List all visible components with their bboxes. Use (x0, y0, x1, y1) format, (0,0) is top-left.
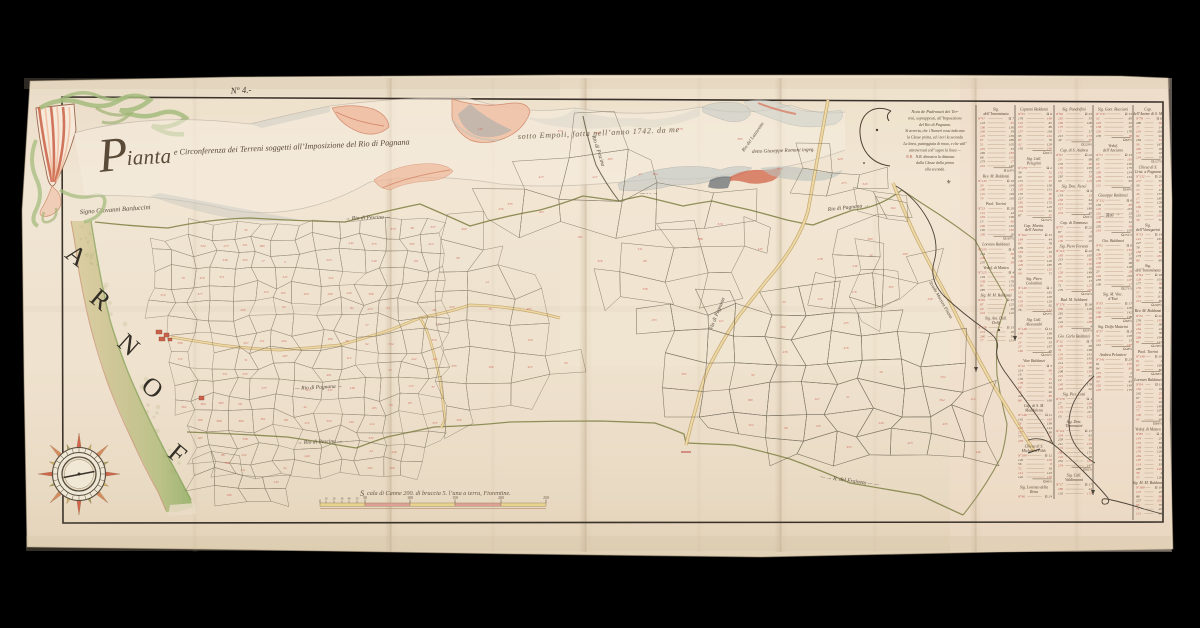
svg-text:N.B. dimostra la distanza: N.B. dimostra la distanza (915, 155, 955, 159)
svg-text:285: 285 (980, 288, 985, 292)
svg-text:323: 323 (243, 258, 248, 262)
svg-text:Nº97: Nº97 (1055, 153, 1063, 157)
svg-text:175: 175 (1127, 388, 1132, 392)
svg-text:476: 476 (844, 346, 849, 350)
svg-text:58: 58 (410, 226, 414, 230)
svg-text:P: P (95, 127, 131, 183)
svg-text:21: 21 (846, 395, 850, 399)
svg-text:Nº155: Nº155 (977, 247, 987, 251)
svg-text:123: 123 (1087, 179, 1092, 183)
svg-text:Chiesa di S.: Chiesa di S. (1025, 444, 1044, 448)
svg-text:179: 179 (677, 127, 682, 131)
svg-text:190: 190 (1058, 239, 1063, 243)
svg-text:Nº148: Nº148 (1017, 327, 1027, 331)
svg-text:Nº46: Nº46 (1017, 494, 1025, 498)
svg-text:449: 449 (392, 450, 397, 454)
svg-text:dalla Classe dalla prima: dalla Classe dalla prima (916, 161, 954, 165)
svg-text:Sig. Dott.: Sig. Dott. (1067, 420, 1082, 424)
svg-text:547: 547 (283, 275, 288, 279)
svg-text:Nº78: Nº78 (1135, 117, 1143, 121)
svg-text:234: 234 (1058, 211, 1063, 215)
svg-text:549: 549 (372, 259, 377, 263)
svg-text:210: 210 (980, 164, 985, 168)
svg-text:Nº152: Nº152 (1095, 198, 1105, 202)
svg-text:319: 319 (717, 222, 722, 226)
svg-text:273: 273 (262, 386, 267, 390)
svg-text:62: 62 (1089, 387, 1093, 391)
svg-text:85: 85 (408, 401, 412, 405)
svg-text:— - - →: — - - → (639, 190, 658, 197)
svg-text:34: 34 (386, 306, 390, 310)
svg-text:142: 142 (1018, 475, 1023, 479)
svg-text:90: 90 (1058, 179, 1062, 183)
svg-text:470: 470 (200, 276, 205, 280)
svg-text:517: 517 (198, 292, 203, 296)
svg-text:Lorenzo Baldanzi: Lorenzo Baldanzi (1133, 378, 1161, 382)
svg-text:Ω232½: Ω232½ (1041, 353, 1052, 357)
svg-text:79: 79 (980, 196, 984, 200)
svg-text:Nº69: Nº69 (977, 298, 985, 302)
svg-text:445: 445 (757, 247, 762, 251)
svg-text:43: 43 (638, 172, 642, 176)
svg-text:446: 446 (976, 450, 981, 454)
svg-text:Lorenzo Baldanzi: Lorenzo Baldanzi (981, 243, 1009, 247)
svg-text:Rev. M. Baldanzi: Rev. M. Baldanzi (982, 174, 1010, 178)
svg-text:Ω55½: Ω55½ (1083, 329, 1092, 333)
svg-text:attraversati coll’ segno la li: attraversati coll’ segno la linea — (909, 148, 961, 152)
svg-text:166: 166 (328, 337, 333, 341)
svg-text:Bad. M. Seldanni: Bad. M. Seldanni (1060, 298, 1087, 302)
svg-text:Sig. Pandolfini: Sig. Pandolfini (1062, 108, 1085, 112)
svg-text:235: 235 (243, 372, 248, 376)
svg-text:77: 77 (980, 339, 984, 343)
svg-text:Ω 20: Ω 20 (1155, 175, 1162, 179)
svg-text:42: 42 (303, 405, 307, 409)
svg-text:Vine Baldanzi: Vine Baldanzi (1023, 359, 1045, 363)
svg-text:Ω 11: Ω 11 (1155, 383, 1162, 387)
svg-text:356: 356 (457, 418, 462, 422)
svg-text:Sig. Gaet. Bucciani: Sig. Gaet. Bucciani (1098, 108, 1128, 112)
svg-text:Ω 22: Ω 22 (1085, 153, 1092, 157)
svg-text:106: 106 (227, 493, 232, 497)
svg-text:388: 388 (697, 237, 702, 241)
svg-text:222: 222 (412, 357, 417, 361)
svg-text:203: 203 (1058, 387, 1063, 391)
svg-text:88: 88 (1136, 258, 1140, 262)
svg-text:Nº104: Nº104 (1017, 233, 1027, 237)
svg-text:Ω127½: Ω127½ (1151, 160, 1162, 164)
svg-text:Ω134½: Ω134½ (1081, 292, 1092, 296)
svg-text:Nº85: Nº85 (1135, 432, 1143, 436)
svg-text:209: 209 (390, 466, 395, 470)
svg-text:52: 52 (283, 466, 287, 470)
svg-text:Gio. Baldanzi: Gio. Baldanzi (1102, 239, 1124, 243)
svg-text:Maddalena: Maddalena (1024, 408, 1043, 412)
svg-text:dell’Ancisa: dell’Ancisa (1025, 228, 1043, 232)
svg-text:Nº 4.-: Nº 4.- (229, 85, 251, 96)
svg-text:265: 265 (607, 157, 612, 161)
svg-text:Nº32: Nº32 (1135, 314, 1143, 318)
svg-text:Ω57½: Ω57½ (1043, 312, 1052, 316)
svg-text:478: 478 (783, 350, 788, 354)
svg-text:Ω271½: Ω271½ (1121, 287, 1132, 291)
svg-text:Ω187½: Ω187½ (1003, 237, 1014, 241)
svg-text:del Rio di Pagnana.: del Rio di Pagnana. (919, 122, 951, 127)
svg-text:Ω 1: Ω 1 (1047, 286, 1053, 290)
svg-text:292: 292 (368, 466, 373, 470)
svg-text:247: 247 (328, 388, 333, 392)
svg-text:Nº197: Nº197 (1055, 189, 1065, 193)
svg-text:210: 210 (980, 311, 985, 315)
svg-text:383: 383 (219, 401, 224, 405)
svg-text:132: 132 (1058, 492, 1063, 496)
svg-text:151: 151 (1009, 339, 1014, 343)
svg-text:173: 173 (1087, 492, 1092, 496)
svg-text:176: 176 (852, 290, 857, 294)
svg-text:82: 82 (350, 306, 354, 310)
svg-text:531: 531 (243, 243, 248, 247)
svg-text:71: 71 (1049, 272, 1053, 276)
svg-text:Ω 1: Ω 1 (1157, 432, 1163, 436)
svg-text:100: 100 (1058, 324, 1063, 328)
svg-text:58: 58 (238, 402, 242, 406)
svg-text:Ω 4: Ω 4 (1009, 247, 1015, 251)
svg-text:396: 396 (369, 292, 374, 296)
svg-text:Nº176: Nº176 (1055, 303, 1065, 307)
svg-text:36: 36 (345, 339, 349, 343)
svg-text:Sig. Piero Forzoni: Sig. Piero Forzoni (1060, 244, 1089, 248)
svg-text:Rev. M. Baldanzi: Rev. M. Baldanzi (1134, 309, 1162, 313)
svg-text:335: 335 (452, 364, 457, 368)
svg-text:Ω91½: Ω91½ (1083, 215, 1092, 219)
svg-text:340: 340 (927, 297, 932, 301)
svg-text:92: 92 (365, 342, 369, 346)
svg-text:390: 390 (867, 237, 872, 241)
svg-text:148: 148 (350, 386, 355, 390)
svg-text:114: 114 (971, 397, 976, 401)
svg-text:95: 95 (564, 361, 568, 365)
svg-text:Sig. Lorenzo della: Sig. Lorenzo della (1020, 485, 1048, 489)
svg-text:ianta: ianta (126, 144, 172, 170)
svg-text:100: 100 (407, 496, 413, 500)
svg-text:Ω49½: Ω49½ (1123, 188, 1132, 192)
svg-text:169: 169 (1047, 398, 1052, 402)
svg-text:182: 182 (1018, 349, 1023, 353)
svg-text:Alessandri: Alessandri (1025, 323, 1043, 327)
svg-text:Ω 4: Ω 4 (1009, 271, 1015, 275)
svg-text:522: 522 (329, 276, 334, 280)
svg-text:93: 93 (751, 373, 755, 377)
svg-text:538: 538 (643, 287, 648, 291)
svg-text:Nº152: Nº152 (1135, 175, 1145, 179)
svg-text:26: 26 (1049, 439, 1053, 443)
svg-text:384: 384 (201, 402, 206, 406)
svg-text:52: 52 (388, 368, 392, 372)
svg-text:Cap. di Tommaso: Cap. di Tommaso (1060, 221, 1087, 225)
svg-text:Nº121: Nº121 (1055, 429, 1065, 433)
svg-text:250: 250 (543, 496, 549, 500)
svg-text:181: 181 (284, 418, 289, 422)
svg-text:Nº119: Nº119 (1055, 249, 1065, 253)
svg-text:155: 155 (264, 290, 269, 294)
svg-text:17: 17 (261, 259, 265, 263)
svg-text:12: 12 (869, 253, 873, 257)
svg-text:cala di Canne 200. di braccia: cala di Canne 200. di braccia 5. l’una a… (367, 490, 511, 497)
svg-text:Ω 15: Ω 15 (1125, 112, 1132, 116)
svg-text:Ω66½: Ω66½ (1153, 422, 1162, 426)
svg-text:Colombini: Colombini (1026, 282, 1042, 286)
svg-text:Ω 3: Ω 3 (1047, 364, 1053, 368)
svg-text:Ω 17: Ω 17 (1125, 302, 1132, 306)
svg-text:dell’Anime di S. M.: dell’Anime di S. M. (1133, 112, 1163, 116)
svg-text:Ω 22: Ω 22 (1155, 314, 1162, 318)
svg-text:76: 76 (488, 307, 492, 311)
svg-text:Sig. Dott. Nenci: Sig. Dott. Nenci (1062, 185, 1087, 189)
svg-text:313: 313 (450, 305, 455, 309)
svg-text:Cap.: Cap. (1144, 108, 1151, 112)
svg-text:235: 235 (980, 260, 985, 264)
svg-text:Ω65½: Ω65½ (1123, 138, 1132, 142)
svg-text:326: 326 (597, 259, 602, 263)
svg-text:Nº84: Nº84 (1135, 273, 1143, 277)
svg-text:104: 104 (891, 206, 896, 210)
svg-text:Nº180: Nº180 (1135, 486, 1145, 490)
svg-text:Ω252½: Ω252½ (1041, 218, 1052, 222)
svg-text:505: 505 (410, 242, 415, 246)
svg-text:Ω 7: Ω 7 (1087, 339, 1093, 343)
svg-text:51: 51 (244, 358, 248, 362)
svg-text:212: 212 (370, 422, 375, 426)
svg-text:Sig. Dolfo Matteini: Sig. Dolfo Matteini (1098, 325, 1128, 329)
svg-text:24: 24 (369, 449, 373, 453)
svg-text:Nº64: Nº64 (1135, 383, 1143, 387)
svg-text:Sig.: Sig. (1145, 223, 1151, 227)
svg-text:Ω 8: Ω 8 (1127, 244, 1133, 248)
svg-text:371: 371 (220, 275, 225, 279)
svg-text:200: 200 (498, 496, 504, 500)
svg-text:334: 334 (201, 244, 206, 248)
svg-text:393: 393 (682, 372, 687, 376)
svg-text:99: 99 (1018, 272, 1022, 276)
svg-text:204: 204 (282, 339, 287, 343)
svg-text:Ω 11: Ω 11 (1045, 327, 1052, 331)
svg-text:105: 105 (372, 406, 377, 410)
svg-text:413: 413 (539, 175, 544, 179)
svg-text:161: 161 (1096, 229, 1101, 233)
svg-text:dell’Innominata: dell’Innominata (1135, 268, 1160, 272)
svg-text:Ω 2: Ω 2 (1047, 166, 1053, 170)
svg-text:377: 377 (557, 129, 562, 133)
svg-text:30: 30 (1011, 260, 1015, 264)
svg-text:52: 52 (1159, 218, 1163, 222)
svg-text:Andrea Pelattieri: Andrea Pelattieri (1099, 353, 1127, 357)
svg-text:98: 98 (1136, 368, 1140, 372)
svg-text:Ω 22: Ω 22 (1085, 226, 1092, 230)
svg-text:364: 364 (940, 398, 945, 402)
svg-text:172: 172 (409, 384, 414, 388)
svg-text:Nº71: Nº71 (1095, 153, 1103, 157)
svg-text:Ω 17: Ω 17 (1085, 483, 1092, 487)
svg-text:Nº55: Nº55 (1017, 112, 1025, 116)
svg-text:279: 279 (1058, 288, 1063, 292)
svg-text:465: 465 (527, 307, 532, 311)
svg-text:alla seconda.: alla seconda. (925, 168, 945, 172)
svg-text:Ω200½: Ω200½ (1151, 303, 1162, 307)
svg-text:337: 337 (433, 421, 438, 425)
svg-text:227: 227 (593, 175, 598, 179)
svg-text:Nº47: Nº47 (977, 117, 985, 121)
svg-text:Sig. Pier. Lotti: Sig. Pier. Lotti (1063, 392, 1085, 396)
svg-text:100: 100 (1096, 282, 1101, 286)
svg-text:Nota de Padronati dei Ter-: Nota de Padronati dei Ter- (910, 109, 959, 114)
svg-text:Nº148: Nº148 (1017, 413, 1027, 417)
svg-text:Vedof.: Vedof. (1108, 144, 1118, 148)
svg-text:172: 172 (178, 357, 183, 361)
svg-text:193: 193 (281, 291, 286, 295)
svg-text:413: 413 (429, 242, 434, 246)
svg-text:527: 527 (244, 341, 249, 345)
svg-text:14: 14 (485, 280, 489, 284)
svg-text:143: 143 (816, 424, 821, 428)
svg-text:361: 361 (261, 417, 266, 421)
svg-text:242: 242 (433, 357, 438, 361)
svg-text:420: 420 (837, 157, 842, 161)
svg-text:N.B.: N.B. (905, 155, 913, 159)
svg-text:Cap. di S. Andrea: Cap. di S. Andrea (1060, 148, 1088, 152)
svg-text:538: 538 (243, 437, 248, 441)
svg-text:Nº145: Nº145 (977, 179, 987, 183)
svg-text:Cepanni Baldanzi: Cepanni Baldanzi (1020, 108, 1048, 112)
svg-text:Nº12: Nº12 (1017, 364, 1025, 368)
svg-text:Ω229½: Ω229½ (1081, 142, 1092, 146)
svg-text:Nº23: Nº23 (977, 206, 985, 210)
svg-text:Nº91: Nº91 (1095, 244, 1103, 248)
svg-text:151: 151 (260, 339, 265, 343)
svg-text:Sig. Call.: Sig. Call. (1027, 318, 1042, 322)
svg-text:Valdimanni: Valdimanni (1065, 478, 1083, 482)
svg-text:Nº57: Nº57 (1095, 330, 1103, 334)
svg-text:Nº170: Nº170 (1055, 397, 1065, 401)
svg-text:81: 81 (1136, 340, 1140, 344)
svg-text:337: 337 (431, 225, 436, 229)
svg-text:dell’Vanegarini: dell’Vanegarini (1136, 228, 1160, 232)
svg-text:380: 380 (217, 419, 222, 423)
svg-text:Ω 24: Ω 24 (1045, 494, 1052, 498)
svg-text:516: 516 (432, 338, 437, 342)
svg-text:Ω 10: Ω 10 (1155, 355, 1162, 359)
svg-text:80: 80 (1159, 258, 1163, 262)
svg-text:127: 127 (815, 397, 820, 401)
svg-text:144: 144 (349, 420, 354, 424)
svg-text:Ω136½: Ω136½ (1151, 344, 1162, 348)
svg-text:122: 122 (1087, 414, 1092, 418)
svg-text:112: 112 (1096, 183, 1101, 187)
svg-text:Ω 6: Ω 6 (1047, 112, 1053, 116)
svg-text:102: 102 (577, 235, 582, 239)
svg-text:Sig. Call.: Sig. Call. (1067, 474, 1082, 478)
svg-text:Ω 15: Ω 15 (1007, 326, 1014, 330)
svg-text:Nº179: Nº179 (1017, 166, 1027, 170)
svg-text:Ω 4: Ω 4 (1087, 397, 1093, 401)
svg-text:Ω 20: Ω 20 (1007, 206, 1014, 210)
svg-text:112: 112 (347, 356, 352, 360)
svg-text:Nº77: Nº77 (1055, 226, 1063, 230)
svg-text:dell’Anciano: dell’Anciano (1103, 149, 1123, 153)
svg-text:Giuseppe Baldanzi: Giuseppe Baldanzi (1098, 194, 1128, 198)
svg-text:305: 305 (737, 137, 742, 141)
svg-text:Ω 22: Ω 22 (1085, 249, 1092, 253)
svg-text:Cap. di S. M.: Cap. di S. M. (1024, 404, 1045, 408)
svg-text:120: 120 (595, 131, 600, 135)
svg-text:Nº13: Nº13 (1135, 232, 1143, 236)
svg-text:249: 249 (879, 421, 884, 425)
svg-text:519: 519 (161, 293, 166, 297)
svg-text:126: 126 (1157, 475, 1162, 479)
svg-text:80: 80 (643, 259, 647, 263)
svg-text:110: 110 (306, 388, 311, 392)
svg-text:Nº199: Nº199 (1017, 453, 1027, 457)
svg-text:Ω 17: Ω 17 (1085, 429, 1092, 433)
svg-text:506: 506 (178, 341, 183, 345)
svg-text:192: 192 (1018, 147, 1023, 151)
svg-text:129: 129 (818, 297, 823, 301)
svg-text:Nº178: Nº178 (977, 326, 987, 330)
svg-text:253: 253 (1018, 439, 1023, 443)
svg-text:362: 362 (182, 405, 187, 409)
svg-text:Ω 7: Ω 7 (1009, 117, 1015, 121)
svg-text:190: 190 (980, 232, 985, 236)
svg-text:213: 213 (368, 307, 373, 311)
svg-text:96: 96 (389, 403, 393, 407)
svg-text:254: 254 (1058, 463, 1063, 467)
svg-text:Sig.: Sig. (993, 108, 999, 112)
svg-text:225: 225 (327, 258, 332, 262)
svg-text:234: 234 (1136, 155, 1141, 159)
svg-text:Ω92½: Ω92½ (1083, 468, 1092, 472)
svg-text:150: 150 (452, 496, 458, 500)
svg-text:Michele a Fibb.: Michele a Fibb. (1021, 449, 1047, 453)
svg-text:99: 99 (784, 426, 788, 430)
svg-text:475: 475 (842, 181, 847, 185)
svg-text:88: 88 (1018, 398, 1022, 402)
svg-text:Ω 12: Ω 12 (1045, 453, 1052, 457)
svg-text:Pelegrini: Pelegrini (1026, 161, 1041, 165)
svg-text:159: 159 (528, 338, 533, 342)
svg-text:Sig. Piero: Sig. Piero (1026, 277, 1041, 281)
svg-text:Ω151½: Ω151½ (1121, 233, 1132, 237)
svg-text:93: 93 (1136, 417, 1140, 421)
svg-text:37: 37 (365, 323, 369, 327)
svg-text:50: 50 (363, 496, 367, 500)
svg-text:28: 28 (432, 308, 436, 312)
svg-text:202: 202 (781, 325, 786, 329)
svg-text:Sig. M. M. Baldanzi: Sig. M. M. Baldanzi (1132, 481, 1163, 485)
svg-text:Ω 16: Ω 16 (1007, 179, 1014, 183)
svg-text:220: 220 (347, 291, 352, 295)
svg-text:Vedof. di Matteo: Vedof. di Matteo (983, 266, 1009, 270)
svg-text:373: 373 (777, 167, 782, 171)
svg-text:532: 532 (941, 375, 946, 379)
svg-text:Tommasini: Tommasini (1066, 424, 1083, 428)
svg-text:546: 546 (223, 258, 228, 262)
svg-text:103: 103 (539, 210, 544, 214)
svg-text:Nº12: Nº12 (1055, 339, 1063, 343)
svg-text:511: 511 (638, 247, 643, 251)
svg-text:269: 269 (328, 292, 333, 296)
svg-text:145: 145 (274, 480, 279, 484)
svg-text:450: 450 (304, 292, 309, 296)
svg-text:33: 33 (782, 300, 786, 304)
